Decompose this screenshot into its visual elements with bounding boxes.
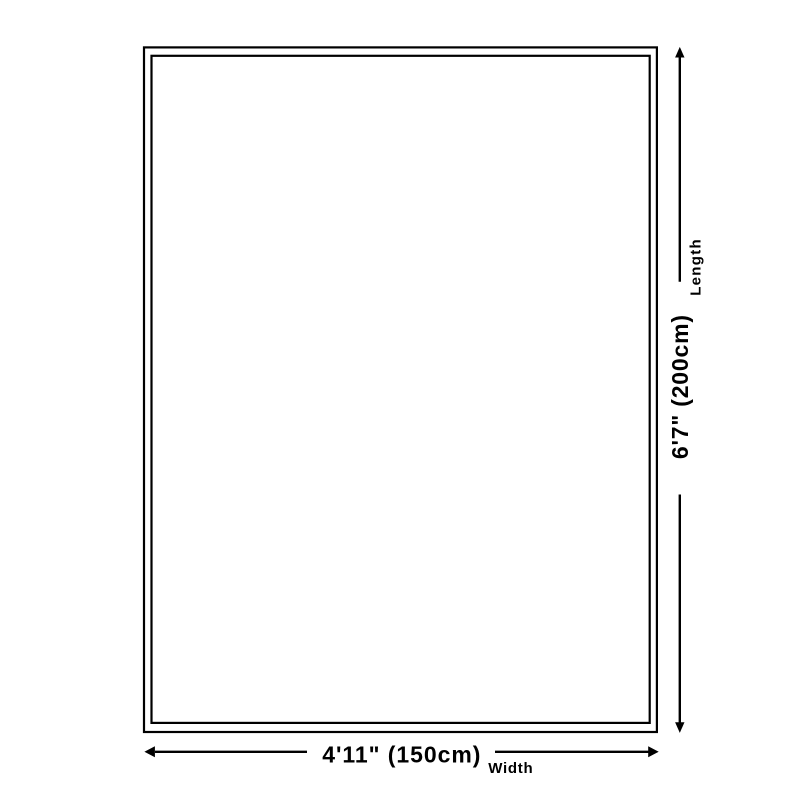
svg-text:4'11" (150cm): 4'11" (150cm)	[322, 741, 481, 767]
svg-text:Width: Width	[488, 760, 533, 777]
svg-text:6'7" (200cm): 6'7" (200cm)	[667, 314, 693, 459]
svg-text:Length: Length	[688, 238, 705, 296]
